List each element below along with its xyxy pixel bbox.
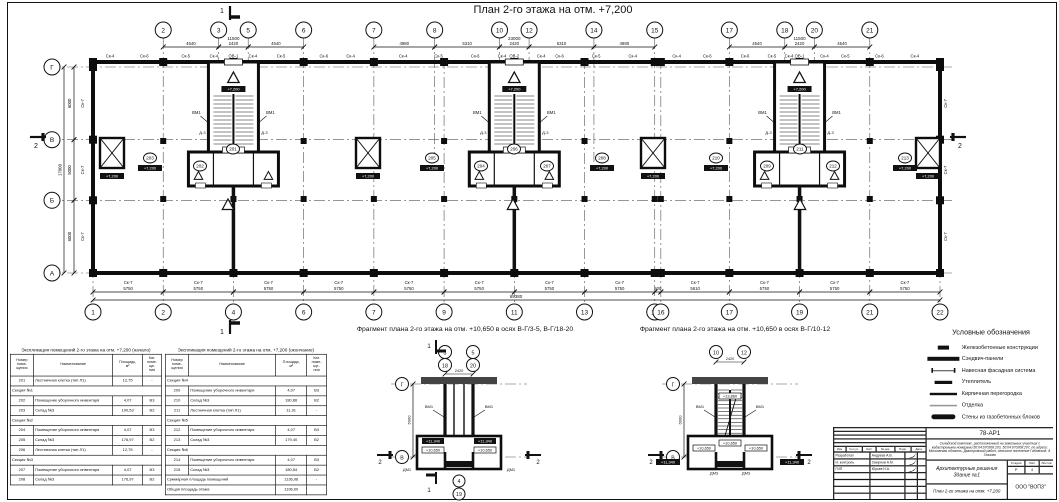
axis-bubble-label: 11 [511,309,518,316]
signature [908,459,917,466]
stamp-cell [905,486,918,493]
wall-label-top: ОВ-1 [795,54,805,59]
stamp-cell [905,473,918,480]
table-cell: Лестничная клетка (тип Л1) [189,406,276,416]
table-cell: 180,86 [276,396,307,406]
section-row: Секция №1 [10,386,161,396]
finish-symbol [930,405,957,406]
column [582,196,588,202]
table-cell: 202 [10,396,33,406]
section-row: Секция №4 [165,376,326,386]
wall-label-top: Ск-4 [672,54,681,59]
table-row: 212Помещение уборочного инвентаря4,07В3 [165,426,326,436]
table-header: Наименование [34,354,113,376]
frag-vdim: 6000 [407,415,412,425]
frag-marker: 2 [378,460,382,466]
table-cell: 4,07 [276,386,307,396]
wall-label-top: Ск-4 [106,54,115,59]
elev-label: +7,200 [362,174,375,179]
table-cell: 207 [10,465,33,475]
room-number: 202 [196,164,204,169]
legend-title: Условные обозначения [925,328,1057,336]
stamp-cell: ГИП [834,466,870,473]
table-cell: 208 [10,475,33,485]
elev-label: +13,860 [723,394,738,399]
stamp-cell [917,459,926,466]
table-cell: 12,75 [113,445,143,455]
table-row: 207Помещение уборочного инвентаря4,07В3 [10,465,161,475]
axis-bubble-label: 7 [372,27,376,34]
table-cell: Склад №3 [189,465,276,475]
canopy [421,377,497,384]
table-cell: В2 [307,465,327,475]
table-row: 209Помещение уборочного инвентаря4,07В3 [165,386,326,396]
wall-label-top: Ск-4 [820,54,829,59]
title-block: 78-АР1 Складской комплекс, расположенный… [833,427,1053,499]
total-cell: Суммарная площадь помещений [165,475,275,485]
column [440,269,448,277]
table-cell: 214 [165,455,188,465]
vm-label: ВМ1 [266,110,275,115]
total-cell: 1196,00 [276,485,307,495]
column [936,269,944,277]
table-cell: В3 [307,386,327,396]
legend-label: Железобетонные конструкции [962,345,1038,351]
rc-symbol [938,345,949,349]
dim-value: 5750 [830,286,840,291]
table-row: Секция №6 [165,445,326,455]
column [370,58,378,66]
table-row: 214Помещение уборочного инвентаря4,07В3 [165,455,326,465]
line [745,410,756,417]
drawing-sheet: ГВБА124679111315161719212223567810121415… [0,0,1059,502]
room-number: 206 [510,147,518,152]
frag-row-bubble-label: Г [672,382,675,388]
frag-vdim: 6000 [678,415,683,425]
wall-label-top: Ск-4 [785,54,794,59]
frag-marker: 1 [427,488,431,494]
wall-label-top: Ск-6 [471,54,480,59]
column [441,138,447,144]
wall-label-top: Ск-6 [703,54,712,59]
table-row: 203Склад №3190,53В2 [10,406,161,416]
wall-label-top: ОВ-2 [509,54,519,59]
wall-label: Ск-7 [194,280,203,285]
dim-overall-bottom: 69380 [510,294,523,299]
canopy [692,377,768,384]
table-cell: 4,07 [113,426,143,436]
room-number: 201 [229,147,237,152]
wall-label-top: Ск-5 [277,54,286,59]
table-row: 205Склад №3176,97В2 [10,435,161,445]
elev-label: +7,200 [508,87,521,92]
dim-value: 5610 [690,286,700,291]
column [867,138,873,144]
table-row: Секция №1 [10,386,161,396]
elev-label: +7,200 [106,174,119,179]
table-cell: Помещение уборочного инвентаря [34,426,113,436]
wall-label: Ск-7 [80,165,85,174]
elev-label: +7,200 [647,174,660,179]
table-cell: Помещение уборочного инвентаря [189,386,276,396]
elev-label: +11,340 [785,460,800,465]
room-number: 208 [598,156,606,161]
dim-value: 4540 [752,41,762,46]
stamp-cell: Разработал [834,452,870,459]
wall-label-top: Ск-5 [768,54,777,59]
dim-value: 2420 [229,41,239,46]
wall-label-top: Ск-6 [875,54,884,59]
table-row: Секция №5 [165,416,326,426]
frag-axis-bubble-label: 20 [470,363,476,369]
frag-dim: 2420 [455,369,463,373]
total-cell: - [307,475,327,485]
door-label: Д-3 [199,130,206,135]
section-marker-label: 2 [34,143,38,150]
door-label: Д-3 [765,130,772,135]
dm-label: ДМ3 [710,471,719,476]
table-cell: 176,97 [113,475,143,485]
axis-bubble-label: 1 [91,309,95,316]
table-cell: В2 [142,435,161,445]
axis-bubble-label: В [50,137,54,144]
table-cell: В2 [307,396,327,406]
axis-bubble-label: 12 [525,27,533,34]
axis-bubble-label: 15 [651,27,659,34]
wall-label: Ск-7 [264,280,273,285]
axis-bubble-label: 5 [246,27,250,34]
stamp-sheet-value: 4 [1025,466,1039,474]
vm-label: ВМ1 [758,110,767,115]
gasblock-symbol [931,415,955,420]
dim-value: 5750 [123,286,133,291]
table-title: Экспликация помещений 2-го этажа на отм.… [165,348,327,353]
stamp-cell [834,473,870,480]
column [581,269,589,277]
door-opening [762,183,772,188]
elev-label: +7,200 [144,166,157,171]
table-cell: 190,53 [113,406,143,416]
table-cell: Помещение уборочного инвентаря [34,465,113,475]
column [658,196,664,202]
dim-value: 5750 [760,286,770,291]
axis-bubble-label: 21 [866,309,874,316]
legend-item: Железобетонные конструкции [925,342,1057,354]
axis-bubble-label: 13 [581,309,589,316]
table-row: 215Склад №3180,54В2 [165,465,326,475]
stamp-company: ООО "ВОПЗ" [1007,474,1053,499]
table-cell: 203 [10,406,33,416]
vm-label: ВМ1 [756,404,765,409]
table-row: Секция №2 [10,416,161,426]
elev-label: +11,340 [661,460,676,465]
stamp-sheets-value [1039,466,1053,474]
axis-bubble-label: Б [50,198,54,205]
column [936,63,944,71]
wall-label-top: Ск-5 [434,54,443,59]
wall-label-top: ОВ-1 [229,54,239,59]
entry-door [791,59,809,65]
room-number: 212 [829,164,837,169]
room-number: 207 [543,164,551,169]
stamp-cell [870,480,905,487]
axis-bubble-label: 6 [302,27,306,34]
table-header: Кат. поме- ще- ния [307,354,327,376]
elev-label: +11,340 [426,439,441,444]
table-cell: 211 [165,406,188,416]
door-label: Д-3 [480,130,487,135]
column [89,269,97,277]
dim-value: 5310 [462,41,472,46]
frag-axis-bubble-label: 18 [442,363,448,369]
wall-label-top: Ск-4 [399,54,408,59]
table-cell: - [307,406,327,416]
stamp-stage-value: Р [1007,466,1025,474]
stamp-cell [834,486,870,493]
table-cell: 176,97 [113,435,143,445]
legend-item: Кирпичная перегородка [925,388,1057,400]
wall-label: Ск-7 [475,280,484,285]
dim-value: 2420 [510,41,520,46]
axis-bubble-label: 19 [796,309,804,316]
section-row: Секция №6 [165,445,326,455]
wall-label-top: Ск-4 [628,54,637,59]
axis-bubble-label: 17 [726,309,734,316]
column [726,196,732,202]
axis-bubble-label: 10 [496,27,504,34]
room-number: 205 [428,156,436,161]
wall-label: Ск-7 [80,232,85,241]
stair-stringer [799,94,801,148]
legend-item: Отделка [925,400,1057,412]
insulation-symbol [935,381,953,384]
wall-label-top: Ск-5 [182,54,191,59]
wall-label-top: Ск-6 [140,54,149,59]
table-cell: 4,07 [113,396,143,406]
axis-bubble-label: 21 [866,27,874,34]
column [726,138,732,144]
stamp-cell [917,473,926,480]
fragment-caption-1: Фрагмент плана 2-го этажа на отм. +10,65… [330,326,600,333]
table-cell: В3 [307,426,327,436]
stamp-object: Архитектурные решения Здание №1 [926,460,1007,484]
table-cell: В3 [142,465,161,475]
table-cell: 11,91 [276,406,307,416]
table-row: Секция №3 [10,455,161,465]
column [652,196,658,202]
wall-label-top: Ск-4 [210,54,219,59]
column [581,58,589,66]
wall-label-top: Ск-4 [911,54,920,59]
table-cell: В3 [142,396,161,406]
table-cell: Склад №3 [34,435,113,445]
explication-table: Номер поме- щенияНаименованиеПлощадь, м²… [165,354,327,495]
axis-bubble-label: 20 [811,27,819,34]
table-cell: Лестничная клетка (тип Л1) [34,376,113,386]
frag-marker: 2 [807,460,811,466]
door-label: Д-3 [261,130,268,135]
dim-value: 5750 [545,286,555,291]
legend-label: Навесная фасадная система [962,368,1036,374]
table-cell: 4,07 [276,426,307,436]
vm-label: ВМ1 [473,110,482,115]
total-cell [307,485,327,495]
stamp-cell: Андреев А.В. [870,452,905,459]
column [725,58,733,66]
wall-label-top: Ск-5 [841,54,850,59]
stamp-doc-number: 78-АР1 [926,428,1053,439]
signature [908,466,917,473]
wall-label-top: Ск-4 [537,54,546,59]
axis-bubble-label: 2 [161,309,165,316]
table-cell: 201 [10,376,33,386]
table-cell: В2 [142,475,161,485]
axis-bubble-label: 7 [372,309,376,316]
elev-label: +7,200 [710,166,723,171]
vm-label: ВМ1 [192,110,201,115]
table-row: 211Лестничная клетка (тип Л1)11,91- [165,406,326,416]
frag-axis-bubble-label: 4 [458,479,461,485]
axis-bubble-label: А [50,270,55,277]
line [433,410,444,417]
legend-item: Стены из газобетонных блоков [925,411,1057,423]
frag-dim: 2420 [726,357,734,361]
dim-value: 4540 [271,41,281,46]
dim-value: 5750 [900,286,910,291]
legend-label: Отделка [962,403,983,409]
column [657,269,665,277]
column [441,196,447,202]
explication-table-1: Экспликация помещений 2-го этажа на отм.… [10,348,162,500]
wall-label-top: Ск-4 [498,54,507,59]
landing-wall [716,461,744,467]
frag-marker: 2 [536,460,540,466]
line [704,410,715,417]
stamp-sheet-title: План 2-го этажа на отм. +7,200 [926,484,1007,499]
sandwich-symbol [927,357,959,361]
stamp-cell [905,459,918,466]
axis-bubble-label: 18 [781,27,789,34]
dim-value: 2420 [795,41,805,46]
legend-item: Навесная фасадная система [925,365,1057,377]
stamp-cell [905,452,918,459]
wall-label-top: Ск-5 [592,54,601,59]
table-row: 204Помещение уборочного инвентаря4,07В3 [10,426,161,436]
section-marker-label: 2 [958,143,962,150]
column [301,196,307,202]
table-cell: 215 [165,465,188,475]
table-header: Площадь, м² [276,354,307,376]
room-number: 209 [763,164,771,169]
table-cell: - [142,445,161,455]
section-marker-label: 1 [220,329,224,336]
leader [826,116,833,122]
table-cell: 204 [10,426,33,436]
axis-bubble-label: 8 [433,27,437,34]
legend-label: Сэндвич-панели [962,356,1003,362]
room-number: 213 [901,156,909,161]
stamp-cell [834,493,870,499]
wall-label-top: Ск-4 [346,54,355,59]
stamp-cell [917,486,926,493]
table-header: Наименование [189,354,276,376]
dim-value: 4980 [399,41,409,46]
fragment-caption-2: Фрагмент плана 2-го этажа на отм. +10,65… [615,326,855,333]
column [440,58,448,66]
axis-bubble-label: 3 [217,27,221,34]
table-cell: 210 [165,396,188,406]
wall-label-top: Ск-6 [320,54,329,59]
dim-value: 6000 [67,231,72,241]
table-cell: 213 [165,435,188,445]
elev-label: +7,200 [426,166,439,171]
section-row: Секция №2 [10,416,161,426]
table-header: Площадь, м² [113,354,143,376]
stair-stringer [232,94,234,148]
elev-label: +10,650 [723,441,738,446]
wall-label: Ск-7 [405,280,414,285]
table-cell: Помещение уборочного инвентаря [34,396,113,406]
stamp-cell [917,452,926,459]
table-cell: Склад №3 [34,406,113,416]
room-number: 210 [712,156,720,161]
table-row: 213Склад №3179,40В2 [165,435,326,445]
stamp-cell [870,486,905,493]
axis-bubble-label: Г [50,64,54,71]
door-opening [476,183,486,188]
total-cell: 1136,06 [276,475,307,485]
dm-label: ДМ3 [742,471,751,476]
column [657,58,665,66]
door-label: Д-3 [542,130,549,135]
stair-stringer [513,94,515,148]
table-cell: 209 [165,386,188,396]
table-row: 208Склад №3176,97В2 [10,475,161,485]
table-cell: Помещение уборочного инвентаря [189,455,276,465]
facade-symbol [931,370,955,371]
column [936,196,944,204]
stamp-cell [870,473,905,480]
elev-label: +7,200 [596,166,609,171]
dim-value: 5000 [67,165,72,175]
total-cell: Общая площадь этажа [165,485,275,495]
legend-label: Кирпичная перегородка [962,391,1022,397]
table-cell: 205 [10,435,33,445]
column [300,58,308,66]
column [159,58,167,66]
dim-value: 5750 [194,286,204,291]
leader [200,116,207,122]
column [867,196,873,202]
axis-bubble-label: 22 [936,309,944,316]
table-cell: Лестничная клетка (тип Л1) [34,445,113,455]
dim-value: 500 [654,286,662,291]
stamp-cell [917,493,926,499]
table-row: Общая площадь этажа1196,00 [165,485,326,495]
table-cell: 212 [165,426,188,436]
stamp-cell [870,493,905,499]
column [582,138,588,144]
table-cell: Склад №3 [34,475,113,485]
wall-label: Ск-7 [691,280,700,285]
stamp-cell: Юрьев Н.А. [870,466,905,473]
table-cell: 12,75 [113,376,143,386]
dim-value: 5750 [615,286,625,291]
page-title: План 2-го этажа на отм. +7,200 [473,4,632,16]
door-label: Д-3 [827,130,834,135]
table-cell: 4,07 [113,465,143,475]
dim-value: 5310 [557,41,567,46]
